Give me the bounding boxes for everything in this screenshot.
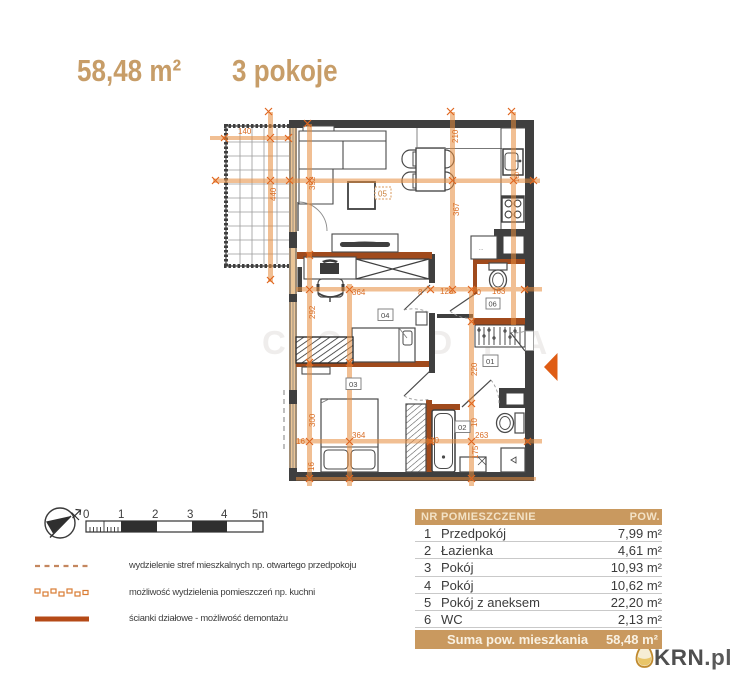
svg-text:16: 16: [296, 437, 305, 446]
svg-text:440: 440: [269, 187, 278, 201]
svg-text:160: 160: [515, 171, 521, 182]
svg-text:01: 01: [486, 357, 494, 366]
svg-text:263: 263: [475, 431, 489, 440]
svg-text:20: 20: [472, 288, 481, 297]
svg-text:0: 0: [83, 509, 89, 521]
svg-text:292: 292: [308, 305, 317, 319]
svg-text:364: 364: [352, 288, 366, 297]
svg-text:04: 04: [381, 311, 389, 320]
svg-text:210: 210: [451, 129, 460, 143]
svg-text:...: ...: [479, 246, 483, 252]
svg-text:16: 16: [307, 462, 316, 471]
svg-text:175: 175: [471, 445, 480, 459]
svg-text:300: 300: [308, 413, 317, 427]
svg-text:140: 140: [238, 127, 252, 136]
svg-text:367: 367: [452, 202, 461, 216]
svg-text:03: 03: [349, 380, 357, 389]
svg-text:5m: 5m: [252, 509, 268, 521]
svg-text:2: 2: [152, 509, 158, 521]
svg-text:163: 163: [492, 287, 506, 296]
svg-text:05: 05: [378, 190, 387, 199]
svg-text:364: 364: [352, 431, 366, 440]
svg-text:10: 10: [430, 436, 439, 445]
svg-text:06: 06: [489, 300, 497, 309]
svg-text:220: 220: [470, 362, 479, 376]
svg-text:1: 1: [118, 509, 124, 521]
svg-text:8: 8: [418, 288, 423, 297]
svg-text:352: 352: [308, 176, 317, 190]
svg-text:4: 4: [221, 509, 228, 521]
svg-text:02: 02: [458, 423, 466, 432]
svg-text:125: 125: [440, 287, 454, 296]
svg-text:10: 10: [470, 418, 479, 427]
svg-text:3: 3: [187, 509, 193, 521]
